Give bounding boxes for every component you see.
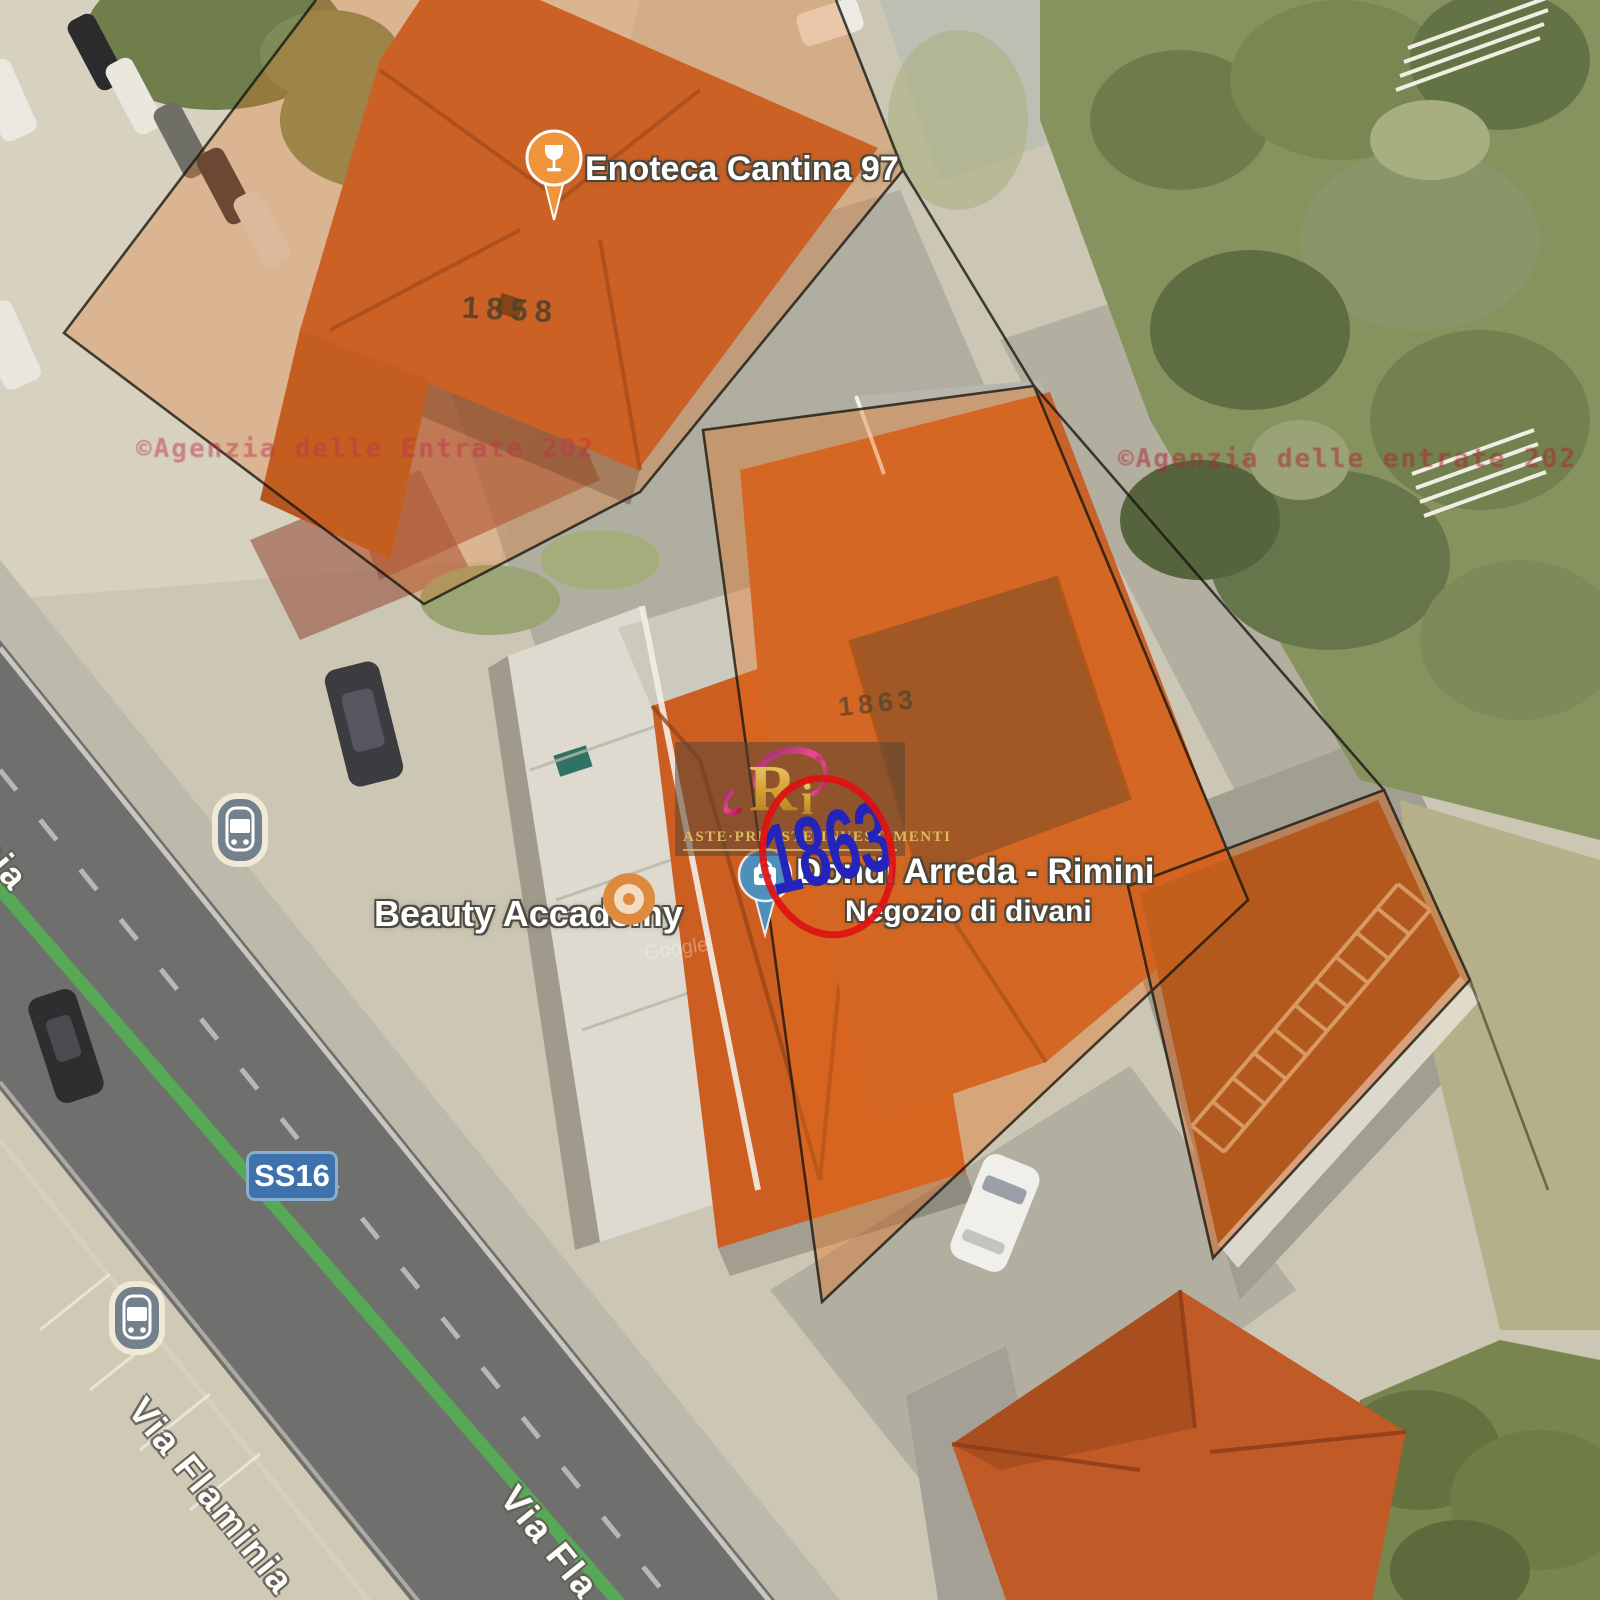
- agency-watermark-right: ©Agenzia delle entrate 202: [1118, 444, 1577, 474]
- satellite-map-view[interactable]: 1858 1863 ©Agenzia delle Entrate 202 ©Ag…: [0, 0, 1600, 1600]
- bus-stop-icon[interactable]: [108, 1280, 166, 1356]
- poi-dot-icon[interactable]: [603, 873, 655, 925]
- beauty-poi-dot[interactable]: [600, 870, 658, 928]
- enoteca-poi-pin[interactable]: [522, 126, 586, 226]
- parcel-number-top: 1858: [461, 289, 560, 330]
- wine-glass-pin-icon[interactable]: [527, 131, 581, 220]
- bus-stop-icon[interactable]: [211, 792, 269, 868]
- logo-swirl-bottom: [725, 792, 739, 812]
- enoteca-poi-label[interactable]: Enoteca Cantina 97: [585, 150, 899, 189]
- route-badge-ss16: SS16: [246, 1151, 338, 1201]
- agency-watermark-left: ©Agenzia delle Entrate 202: [136, 434, 595, 464]
